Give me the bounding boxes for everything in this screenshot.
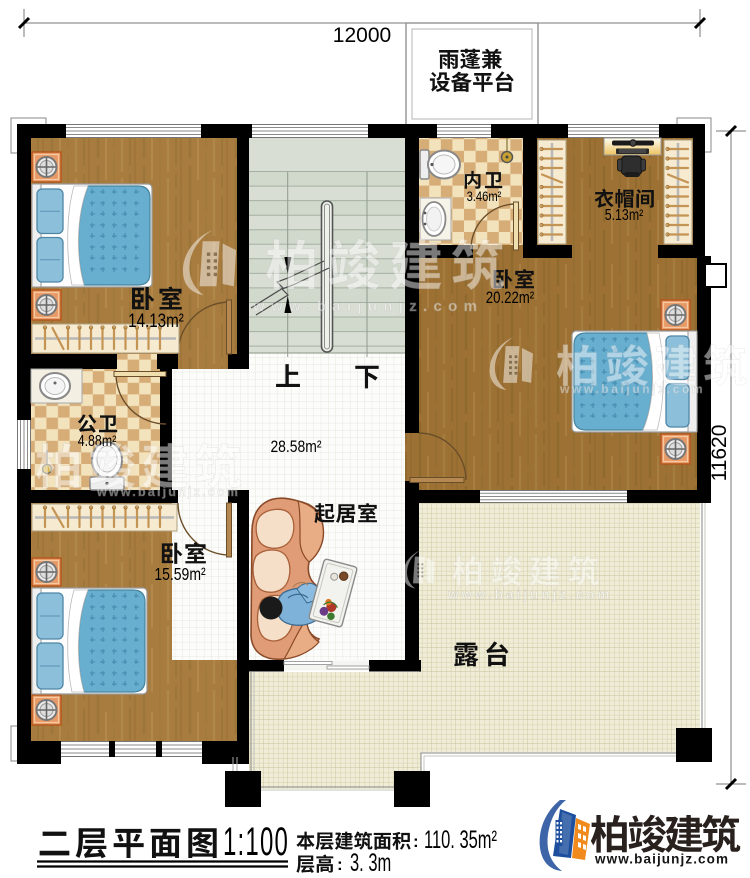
svg-text:www.baijunjz.com: www.baijunjz.com xyxy=(96,485,240,499)
svg-text:110. 35m²: 110. 35m² xyxy=(424,827,497,854)
svg-text:15.59m²: 15.59m² xyxy=(154,566,205,585)
svg-text:www.baijunjz.com: www.baijunjz.com xyxy=(594,852,729,867)
svg-text:1:100: 1:100 xyxy=(223,819,289,864)
svg-text:14.13m²: 14.13m² xyxy=(128,309,184,331)
svg-text:11620: 11620 xyxy=(708,425,731,482)
svg-text:12000: 12000 xyxy=(333,24,391,47)
svg-text:www.baijunjz.com: www.baijunjz.com xyxy=(447,587,613,602)
svg-text:20.22m²: 20.22m² xyxy=(486,289,534,308)
svg-text:3.46m²: 3.46m² xyxy=(467,189,502,204)
svg-text:3. 3m: 3. 3m xyxy=(350,850,391,877)
svg-text:5.13m²: 5.13m² xyxy=(605,206,644,224)
svg-text:www.baijunjz.com: www.baijunjz.com xyxy=(559,382,705,396)
svg-text::: : xyxy=(413,832,419,851)
svg-text:www.baijunjz.com: www.baijunjz.com xyxy=(252,298,483,315)
svg-text:28.58m²: 28.58m² xyxy=(270,438,321,457)
svg-text::: : xyxy=(337,855,343,874)
